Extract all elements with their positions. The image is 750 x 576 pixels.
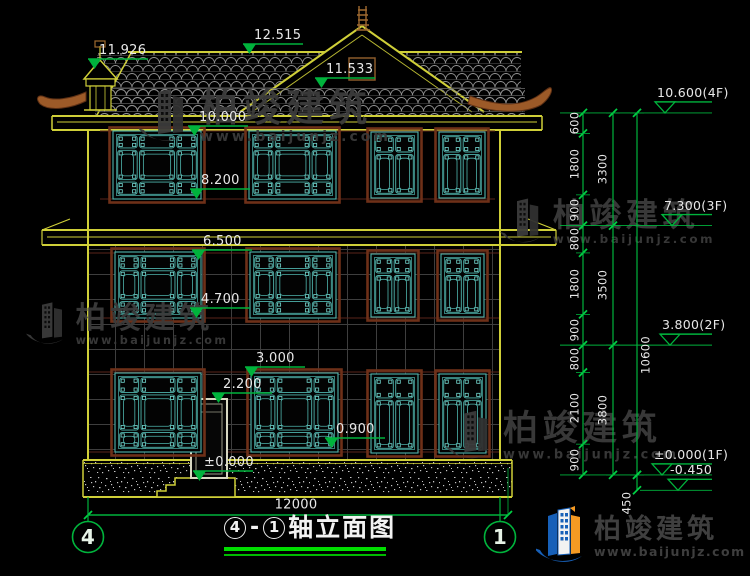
company-logo-brand: 柏竣建筑 bbox=[594, 516, 746, 543]
axis-bubble bbox=[73, 522, 104, 553]
elevation-marker-triangle bbox=[190, 189, 203, 199]
elevation-marker-triangle bbox=[192, 250, 205, 260]
title-dash: - bbox=[250, 517, 259, 539]
elevation-marker-triangle bbox=[668, 479, 688, 490]
elevation-marker-triangle bbox=[662, 215, 682, 226]
title-underline-thin bbox=[224, 554, 386, 556]
elevation-marker-triangle bbox=[245, 367, 258, 377]
elevation-marker-triangle bbox=[325, 438, 338, 448]
elevation-marker-triangle bbox=[655, 102, 675, 113]
elevation-marker-triangle bbox=[243, 44, 256, 54]
axis-bubble bbox=[485, 522, 516, 553]
company-logo: 柏竣建筑 www.baijunjz.com bbox=[536, 506, 746, 568]
dimension-annotations bbox=[0, 0, 750, 576]
elevation-marker-triangle bbox=[88, 59, 101, 69]
drawing-title: 4 - 1 轴立面图 bbox=[224, 515, 396, 540]
elevation-marker-triangle bbox=[660, 334, 680, 345]
elevation-marker-triangle bbox=[315, 78, 328, 88]
cad-elevation-canvas: 柏竣建筑 www.baijunjz.com 柏竣建筑 www.baijunjz.… bbox=[0, 0, 750, 576]
elevation-marker-triangle bbox=[652, 464, 672, 475]
elevation-marker-triangle bbox=[212, 393, 225, 403]
elevation-marker-triangle bbox=[188, 126, 201, 136]
elevation-marker-triangle bbox=[190, 308, 203, 318]
title-underline-thick bbox=[224, 547, 386, 551]
elevation-marker-triangle bbox=[193, 471, 206, 481]
title-axis-bubble-left: 4 bbox=[224, 517, 246, 539]
company-logo-site: www.baijunjz.com bbox=[594, 546, 746, 559]
title-axis-bubble-right: 1 bbox=[263, 517, 285, 539]
title-text: 轴立面图 bbox=[288, 515, 396, 540]
company-logo-icon bbox=[536, 506, 588, 568]
